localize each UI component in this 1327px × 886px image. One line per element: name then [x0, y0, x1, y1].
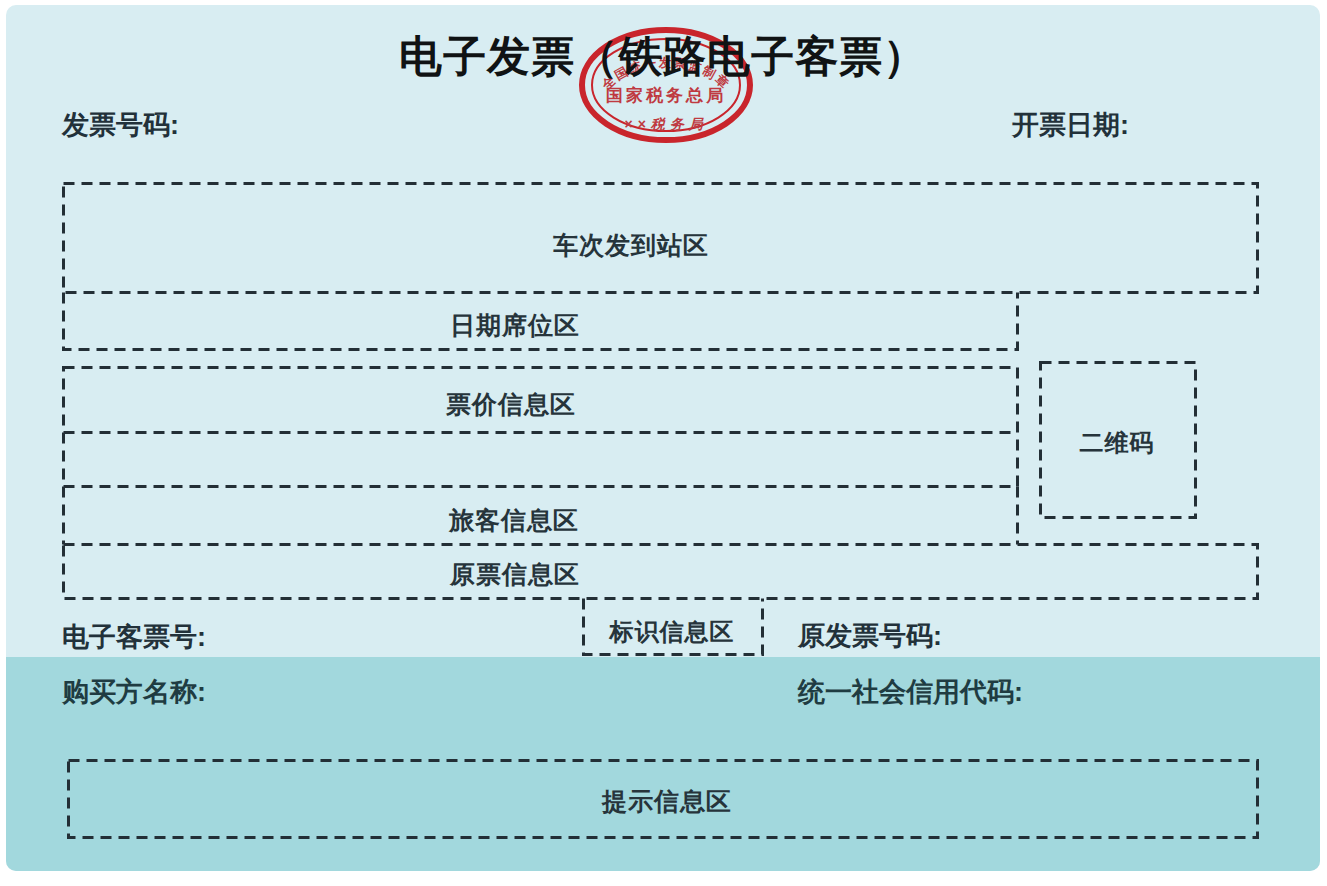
invoice-page: 全国统一发票监制章 国家税务总局 ××税务局 电子发票（铁路电子客票） 发票号码…	[0, 0, 1327, 886]
credit-code-label: 统一社会信用代码:	[798, 674, 1023, 710]
date-seat-zone-label: 日期席位区	[450, 309, 580, 342]
buyer-name-label: 购买方名称:	[62, 674, 206, 710]
original-invoice-number-label: 原发票号码:	[798, 618, 942, 654]
seal-bureau-text: ××税务局	[624, 116, 707, 132]
seal-authority-text: 国家税务总局	[606, 85, 726, 105]
original-ticket-zone-label: 原票信息区	[450, 558, 580, 591]
issue-date-label: 开票日期:	[1012, 107, 1129, 143]
qr-code-zone-label: 二维码	[1080, 427, 1155, 459]
invoice-title: 电子发票（铁路电子客票）	[399, 28, 927, 86]
notice-zone-label: 提示信息区	[602, 785, 732, 818]
blank-zone-border	[64, 433, 1018, 487]
fare-info-zone-label: 票价信息区	[446, 388, 576, 421]
invoice-number-label: 发票号码:	[62, 107, 179, 143]
original-ticket-zone-border	[64, 545, 1258, 599]
identification-zone-label: 标识信息区	[610, 616, 735, 648]
eticket-number-label: 电子客票号:	[62, 619, 206, 655]
train-route-zone-label: 车次发到站区	[553, 229, 709, 262]
passenger-info-zone-label: 旅客信息区	[449, 504, 579, 537]
